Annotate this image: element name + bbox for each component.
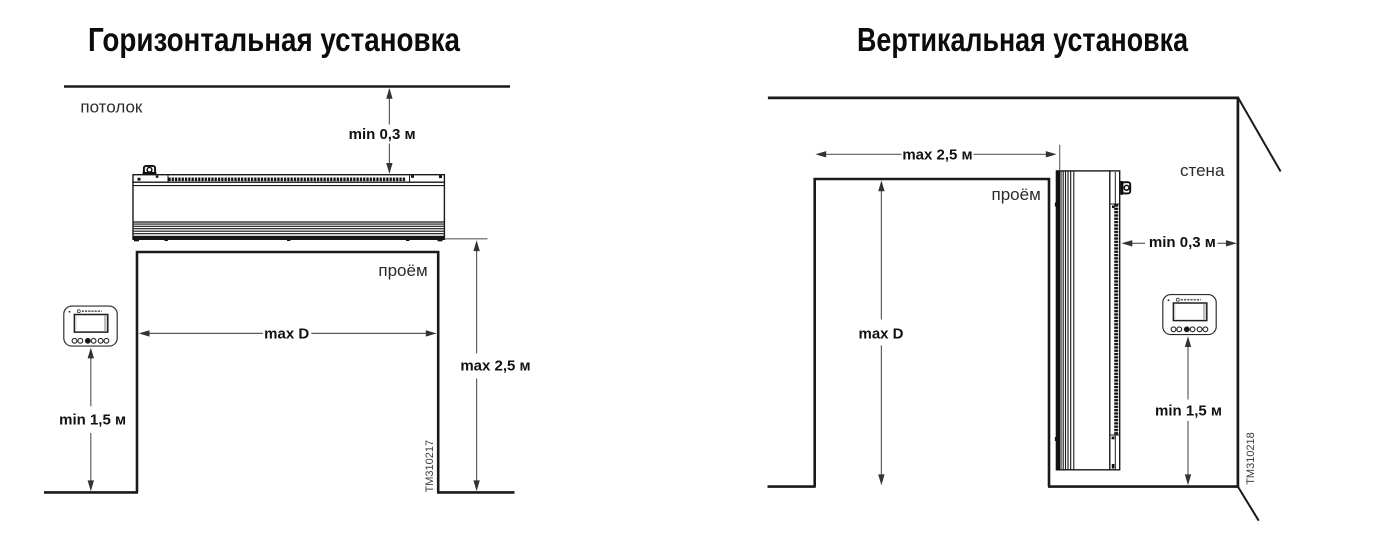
svg-text:min 0,3 м: min 0,3 м (349, 126, 416, 143)
svg-text:стена: стена (1180, 161, 1225, 180)
svg-text:max D: max D (858, 325, 903, 342)
svg-text:потолок: потолок (80, 98, 143, 117)
svg-text:Горизонтальная установка: Горизонтальная установка (88, 21, 461, 58)
svg-text:проём: проём (378, 261, 427, 280)
svg-text:Вертикальная установка: Вертикальная установка (857, 21, 1189, 58)
svg-text:min 0,3 м: min 0,3 м (1149, 234, 1216, 251)
svg-text:max 2,5 м: max 2,5 м (902, 146, 972, 163)
svg-text:TM310218: TM310218 (1245, 432, 1257, 485)
svg-text:max D: max D (264, 326, 309, 343)
svg-text:min 1,5 м: min 1,5 м (59, 412, 126, 429)
svg-text:проём: проём (992, 185, 1041, 204)
svg-text:max 2,5 м: max 2,5 м (460, 357, 530, 374)
svg-text:TM310217: TM310217 (424, 440, 436, 493)
svg-text:min 1,5 м: min 1,5 м (1155, 403, 1222, 420)
